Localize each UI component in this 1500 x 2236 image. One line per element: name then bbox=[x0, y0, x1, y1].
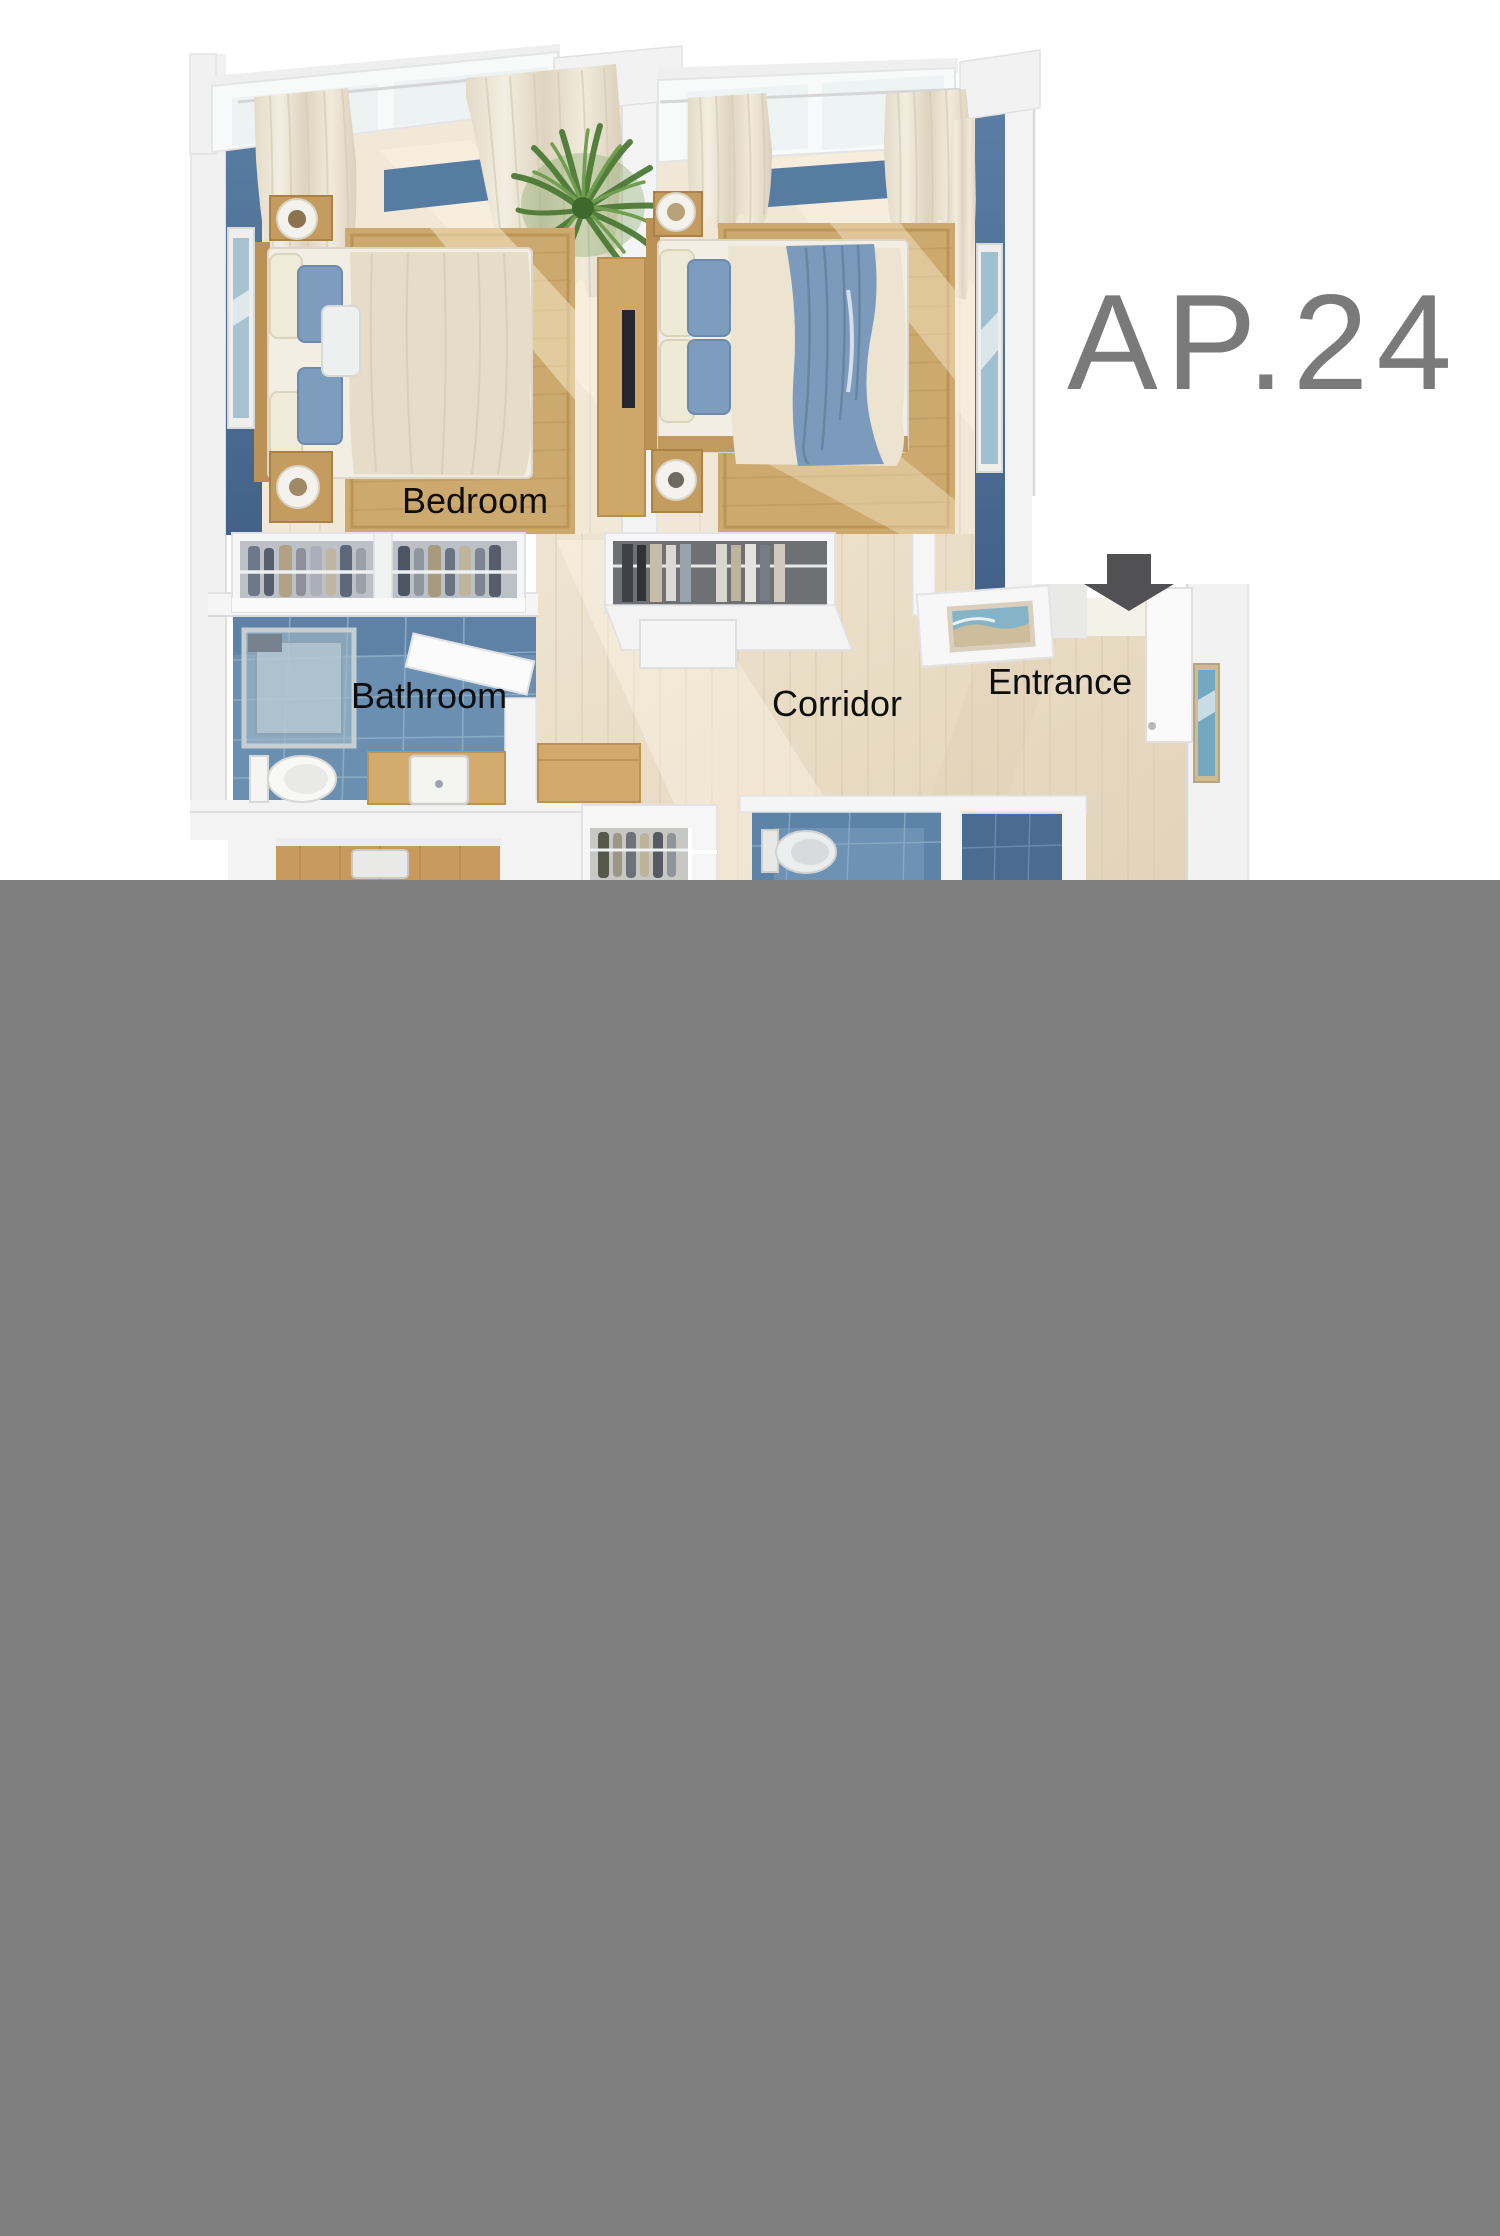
svg-text:Bathroom: Bathroom bbox=[351, 675, 507, 716]
svg-text:Entrance: Entrance bbox=[988, 661, 1132, 702]
svg-text:Corridor: Corridor bbox=[772, 683, 902, 724]
svg-text:AP.24: AP.24 bbox=[1067, 266, 1460, 418]
svg-text:Bedroom: Bedroom bbox=[402, 480, 548, 521]
